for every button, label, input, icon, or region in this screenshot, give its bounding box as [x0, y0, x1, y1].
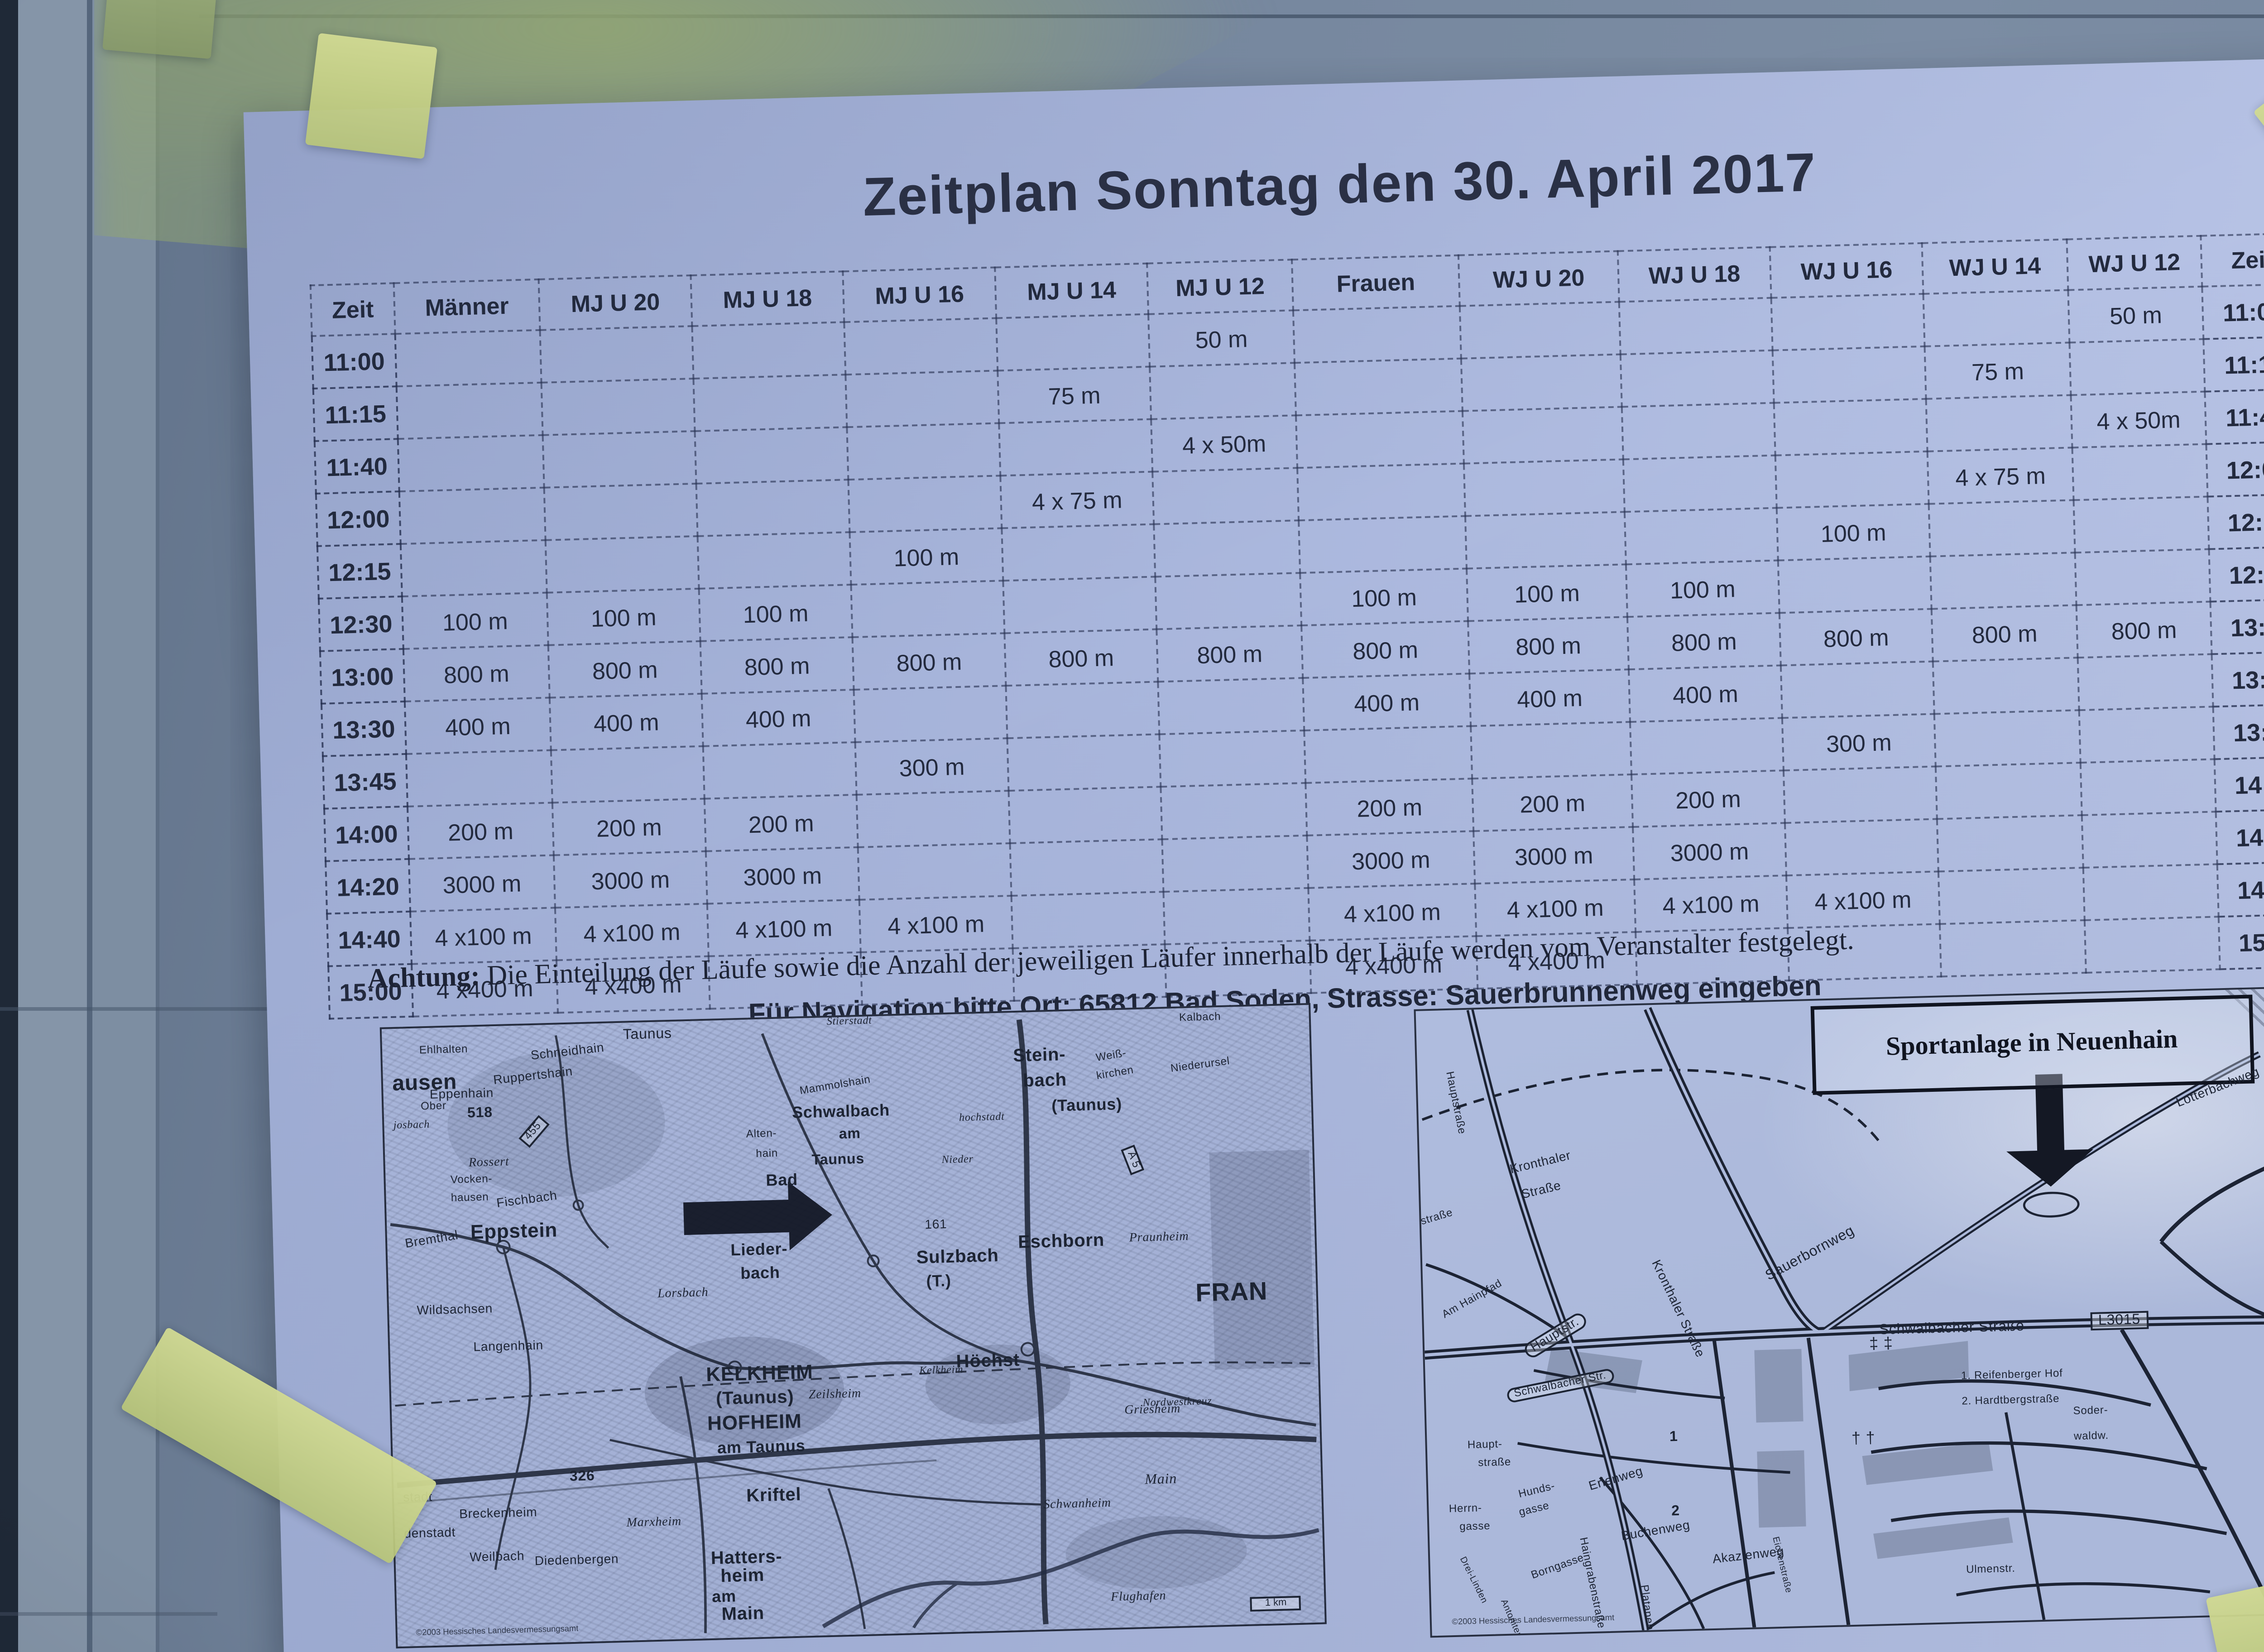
schedule-header-cell: Zeit — [2201, 233, 2264, 287]
schedule-time-cell: 14:20 — [326, 859, 410, 914]
schedule-time-cell: 12:00 — [2206, 442, 2264, 497]
map-label: Soder- — [2073, 1406, 2108, 1417]
map-label: Schwalbach — [792, 1102, 890, 1121]
map-label: hochstadt — [959, 1112, 1005, 1124]
schedule-event-cell — [1937, 815, 2083, 871]
schedule-event-cell: 800 m — [403, 645, 550, 701]
schedule-event-cell: 3000 m — [1307, 831, 1475, 888]
schedule-event-cell: 100 m — [1467, 564, 1627, 621]
schedule-event-cell — [551, 746, 705, 803]
schedule-header-cell: Frauen — [1292, 255, 1460, 311]
schedule-event-cell — [406, 750, 552, 807]
schedule-time-cell: 14:20 — [2216, 809, 2264, 864]
schedule-time-cell: 12:15 — [2207, 494, 2264, 549]
schedule-event-cell — [1923, 290, 2069, 346]
map-label: Praunheim — [1129, 1230, 1189, 1244]
schedule-event-cell — [1158, 678, 1304, 734]
map-label: Ulmenstr. — [1966, 1564, 2015, 1576]
schedule-event-cell — [1623, 456, 1777, 512]
schedule-event-cell: 3000 m — [706, 847, 859, 904]
map-label: am Taunus — [717, 1438, 806, 1457]
schedule-event-cell: 400 m — [1629, 665, 1782, 722]
schedule-event-cell: 50 m — [1148, 310, 1295, 366]
map-label: straße — [1478, 1459, 1511, 1470]
schedule-event-cell: 800 m — [700, 637, 854, 694]
map-label: Wildsachsen — [417, 1304, 493, 1319]
schedule-event-cell — [1630, 718, 1784, 774]
schedule-event-cell — [1471, 722, 1631, 778]
map-label: Stierstadt — [826, 1016, 872, 1028]
schedule-event-cell: 800 m — [1156, 625, 1303, 682]
schedule-event-cell — [1771, 294, 1925, 351]
map-label: Zeilsheim — [808, 1387, 861, 1401]
schedule-event-cell — [2079, 706, 2215, 763]
detail-map: Sportanlage in Neuenhain ©2003 Hessische… — [1414, 983, 2264, 1638]
schedule-event-cell: 100 m — [1300, 568, 1468, 625]
schedule-event-cell — [692, 322, 845, 379]
schedule-event-cell: 100 m — [699, 585, 853, 641]
schedule-event-cell: 200 m — [1305, 778, 1473, 836]
map-label: KELKHEIM — [706, 1364, 813, 1387]
schedule-event-cell — [1150, 363, 1296, 419]
schedule-event-cell — [1933, 658, 2079, 714]
schedule-event-cell — [844, 318, 998, 375]
schedule-event-cell: 4 x100 m — [707, 900, 861, 956]
schedule-event-cell — [848, 475, 1002, 532]
schedule-event-cell — [1625, 508, 1778, 565]
map-label: † † — [1851, 1431, 1875, 1447]
schedule-event-cell: 4 x100 m — [859, 896, 1013, 952]
schedule-event-cell: 4 x100 m — [410, 908, 556, 964]
schedule-event-cell — [546, 536, 699, 593]
map-label: hain — [756, 1148, 778, 1160]
schedule-event-cell — [1012, 892, 1165, 948]
page-title: Zeitplan Sonntag den 30. April 2017 — [245, 127, 2264, 246]
schedule-event-cell — [1161, 783, 1307, 839]
schedule-event-cell — [1006, 682, 1159, 738]
map-label: Bad — [766, 1173, 798, 1190]
schedule-event-cell — [1297, 464, 1465, 521]
schedule-event-cell — [857, 791, 1010, 847]
map-label: Griesheim — [1124, 1404, 1181, 1418]
door-frame-edge — [0, 0, 18, 1652]
schedule-event-cell — [540, 326, 694, 383]
map-label: Stein- — [1013, 1048, 1066, 1068]
schedule-event-cell: 400 m — [405, 698, 551, 754]
map-label: Main — [721, 1606, 764, 1625]
schedule-event-cell — [1010, 839, 1164, 896]
map-label: Taunus — [623, 1028, 672, 1043]
schedule-time-cell: 13:45 — [323, 754, 408, 809]
map-label: Hatters- — [711, 1550, 783, 1570]
schedule-event-cell — [1162, 836, 1308, 892]
schedule-time-cell: 14:00 — [324, 807, 409, 861]
schedule-header-cell: MJ U 16 — [843, 268, 996, 322]
schedule-header-cell: WJ U 14 — [1922, 240, 2068, 294]
schedule-event-cell: 100 m — [849, 528, 1003, 585]
map-label: am — [712, 1588, 737, 1605]
schedule-event-cell: 4 x 50m — [2071, 392, 2206, 448]
schedule-event-cell: 100 m — [547, 589, 700, 645]
map-label: Eppenhain — [430, 1088, 494, 1103]
schedule-time-cell: 13:45 — [2213, 704, 2264, 759]
schedule-event-cell: 200 m — [552, 799, 706, 855]
schedule-event-cell — [2083, 864, 2219, 920]
map-label: Kriftel — [746, 1488, 801, 1507]
schedule-event-cell — [1781, 662, 1934, 718]
schedule-time-cell: 13:00 — [320, 649, 405, 704]
schedule-event-cell: 800 m — [1932, 605, 2078, 661]
schedule-event-cell: 200 m — [1472, 774, 1633, 831]
map-label: Marxheim — [626, 1516, 681, 1530]
schedule-event-cell — [851, 581, 1004, 637]
schedule-event-cell — [2075, 549, 2211, 605]
schedule-sheet: Zeitplan Sonntag den 30. April 2017 Zeit… — [244, 55, 2264, 1652]
schedule-event-cell: 400 m — [1303, 673, 1471, 730]
schedule-event-cell — [845, 370, 999, 427]
map-label: Lieder- — [730, 1241, 788, 1258]
schedule-time-cell: 11:15 — [2203, 336, 2264, 392]
schedule-event-cell — [1009, 787, 1162, 843]
schedule-event-cell: 800 m — [2077, 602, 2212, 658]
schedule-event-cell — [1304, 726, 1472, 783]
schedule-header-cell: WJ U 12 — [2067, 236, 2202, 290]
map-label: am — [839, 1128, 861, 1143]
schedule-event-cell — [703, 742, 857, 799]
schedule-time-cell: 13:30 — [2212, 652, 2264, 707]
schedule-header-cell: Männer — [394, 279, 540, 334]
achtung-label: Achtung: — [367, 961, 480, 995]
map-label: Vocken- — [451, 1175, 493, 1186]
schedule-event-cell — [2069, 339, 2205, 395]
schedule-event-cell — [1003, 577, 1156, 634]
schedule-time-cell: 12:00 — [316, 491, 401, 546]
schedule-event-cell — [398, 435, 544, 491]
schedule-event-cell — [1465, 512, 1626, 568]
map-label: heim — [720, 1569, 765, 1589]
schedule-event-cell: 100 m — [402, 593, 548, 649]
map-label: 326 — [569, 1469, 595, 1484]
door-frame-band — [18, 0, 87, 1652]
schedule-event-cell: 400 m — [550, 694, 703, 750]
schedule-event-cell — [1461, 354, 1622, 411]
schedule-event-cell — [1785, 819, 1938, 875]
map-label: (Taunus) — [1051, 1096, 1122, 1114]
schedule-header-cell: WJ U 20 — [1458, 251, 1619, 306]
schedule-event-cell — [999, 419, 1152, 476]
map-label: Main — [1145, 1472, 1177, 1487]
map-label: ‡ ‡ — [1869, 1336, 1893, 1353]
map-label: HOFHEIM — [707, 1414, 802, 1436]
map-label: 1 — [1669, 1429, 1678, 1444]
schedule-event-cell: 3000 m — [1633, 823, 1786, 879]
map-label: (Taunus) — [716, 1389, 794, 1409]
schedule-event-cell — [996, 314, 1150, 371]
schedule-event-cell — [543, 431, 696, 488]
left-map-scale: 1 km — [1250, 1596, 1301, 1612]
schedule-time-cell: 13:30 — [321, 701, 406, 756]
schedule-event-cell — [1299, 516, 1467, 573]
door-panel-line — [0, 1007, 272, 1011]
map-label: L3015 — [2091, 1311, 2148, 1330]
map-label: Alten- — [746, 1130, 777, 1142]
schedule-event-cell — [1163, 888, 1309, 944]
schedule-event-cell: 800 m — [1780, 609, 1933, 666]
map-label: Weilbach — [470, 1551, 525, 1565]
tape-strip — [102, 0, 216, 59]
schedule-event-cell: 4 x 50m — [1151, 415, 1297, 471]
map-label: Kalbach — [1179, 1013, 1221, 1025]
schedule-event-cell — [542, 379, 695, 435]
schedule-event-cell: 4 x100 m — [1308, 884, 1476, 941]
map-label: Flughafen — [1111, 1590, 1166, 1604]
schedule-event-cell: 3000 m — [554, 851, 707, 908]
schedule-event-cell — [847, 423, 1000, 480]
schedule-event-cell: 75 m — [998, 367, 1151, 423]
schedule-event-cell: 800 m — [1301, 621, 1469, 678]
tape-strip — [305, 33, 437, 159]
schedule-event-cell: 3000 m — [409, 855, 555, 911]
schedule-event-cell — [1938, 868, 2085, 924]
schedule-event-cell — [1621, 351, 1774, 407]
schedule-event-cell — [1784, 767, 1937, 823]
map-label: 2 — [1671, 1504, 1680, 1519]
schedule-header-cell: Zeit — [311, 283, 395, 336]
map-label: Ober — [421, 1102, 446, 1113]
schedule-time-cell: 14:00 — [2215, 757, 2264, 812]
map-label: denstadt — [404, 1527, 456, 1542]
schedule-time-cell: 11:00 — [2202, 284, 2264, 339]
schedule-header-cell: MJ U 12 — [1147, 259, 1293, 314]
map-label: Ehlhalten — [419, 1045, 468, 1057]
schedule-event-cell — [1619, 298, 1773, 355]
door-groove — [87, 0, 92, 1652]
schedule-event-cell — [1774, 399, 1928, 456]
map-label: gasse — [1459, 1522, 1491, 1533]
schedule-event-cell — [1159, 730, 1305, 787]
schedule-time-cell: 13:00 — [2210, 599, 2264, 654]
schedule-event-cell — [1934, 710, 2081, 766]
schedule-event-cell — [1460, 302, 1621, 358]
map-label: Diedenbergen — [535, 1554, 619, 1569]
schedule-event-cell: 3000 m — [1473, 827, 1634, 884]
schedule-event-cell: 200 m — [705, 795, 858, 851]
schedule-event-cell — [1293, 306, 1461, 363]
schedule-time-cell: 11:15 — [313, 386, 398, 441]
schedule-event-cell — [2074, 497, 2209, 553]
map-label: FRAN — [1195, 1278, 1268, 1305]
schedule-event-cell — [693, 375, 847, 431]
schedule-event-cell: 100 m — [1626, 560, 1780, 617]
photo-stage: Zeitplan Sonntag den 30. April 2017 Zeit… — [0, 0, 2264, 1652]
schedule-event-cell — [1929, 500, 2075, 556]
schedule-event-cell — [1154, 520, 1300, 576]
map-label: Breckenheim — [459, 1507, 537, 1522]
schedule-event-cell: 200 m — [1631, 770, 1785, 827]
schedule-header-cell: MJ U 20 — [539, 275, 692, 330]
map-label: Sulzbach — [916, 1248, 999, 1268]
map-label: (T.) — [926, 1274, 951, 1291]
schedule-event-cell — [695, 427, 848, 484]
map-label: Eppstein — [470, 1222, 557, 1244]
schedule-event-cell — [1775, 451, 1929, 508]
schedule-event-cell: 300 m — [1782, 714, 1936, 771]
schedule-header-cell: MJ U 14 — [995, 264, 1148, 318]
map-label: Eschborn — [1018, 1233, 1105, 1253]
schedule-event-cell — [1007, 734, 1161, 791]
schedule-event-cell — [1773, 346, 1926, 403]
schedule-event-cell: 4 x 75 m — [1000, 472, 1154, 528]
schedule-event-cell: 800 m — [1627, 613, 1781, 669]
schedule-event-cell — [401, 540, 547, 596]
map-label: Schwanheim — [1043, 1498, 1111, 1513]
schedule-header-cell: WJ U 18 — [1618, 247, 1771, 302]
schedule-event-cell — [1926, 395, 2072, 451]
schedule-event-cell: 800 m — [853, 633, 1006, 690]
schedule-event-cell — [544, 484, 698, 540]
map-label: Nieder — [941, 1156, 974, 1167]
map-label: hausen — [451, 1193, 489, 1205]
schedule-event-cell: 4 x100 m — [1786, 871, 1940, 928]
map-label: Lorsbach — [657, 1286, 709, 1300]
schedule-event-cell — [1002, 524, 1155, 581]
map-label: waldw. — [2074, 1431, 2109, 1442]
map-label: Rossert — [469, 1156, 509, 1169]
schedule-table: ZeitMännerMJ U 20MJ U 18MJ U 16MJ U 14MJ… — [310, 232, 2264, 1020]
map-label: Langenhain — [473, 1340, 543, 1354]
schedule-event-cell — [1930, 552, 2077, 609]
schedule-event-cell: 400 m — [702, 690, 855, 746]
schedule-time-cell: 12:30 — [2209, 547, 2264, 602]
schedule-header-cell: WJ U 16 — [1770, 243, 1923, 298]
schedule-time-cell: 11:00 — [312, 334, 397, 389]
schedule-event-cell — [854, 686, 1007, 742]
map-label: Kelkheim — [919, 1366, 964, 1378]
overview-map: ©2003 Hessisches Landesvermessungsamt 1 … — [380, 1003, 1327, 1648]
schedule-event-cell — [1152, 468, 1299, 524]
schedule-time-cell: 11:40 — [2205, 389, 2264, 444]
map-label: Höchst — [956, 1352, 1020, 1372]
schedule-event-cell: 800 m — [1468, 617, 1629, 673]
map-label: bach — [1023, 1073, 1067, 1092]
schedule-time-cell: 14:40 — [2217, 861, 2264, 917]
map-label: josbach — [393, 1120, 430, 1132]
schedule-event-cell: 800 m — [548, 641, 702, 698]
schedule-event-cell: 4 x100 m — [555, 904, 709, 960]
schedule-time-cell: 11:40 — [315, 439, 399, 494]
sportanlage-callout: Sportanlage in Neuenhain — [1810, 995, 2254, 1095]
schedule-event-cell: 50 m — [2068, 287, 2203, 343]
schedule-time-cell: 12:15 — [317, 544, 402, 599]
schedule-header-cell: MJ U 18 — [691, 271, 844, 326]
schedule-event-cell: 800 m — [1004, 629, 1158, 686]
schedule-event-cell — [1936, 763, 2082, 819]
map-label: Taunus — [811, 1153, 864, 1168]
schedule-event-cell — [1464, 459, 1625, 516]
schedule-time-cell: 14:40 — [327, 912, 412, 966]
schedule-event-cell — [399, 488, 546, 544]
schedule-event-cell — [1778, 557, 1932, 613]
schedule-time-cell: 12:30 — [319, 596, 403, 651]
schedule-event-cell — [2082, 812, 2217, 868]
schedule-event-cell — [2081, 759, 2216, 815]
door-panel-line — [0, 1612, 217, 1616]
schedule-event-cell — [397, 383, 543, 439]
map-label: bach — [740, 1266, 780, 1283]
schedule-event-cell: 75 m — [1925, 342, 2071, 399]
schedule-event-cell: 300 m — [855, 738, 1009, 795]
map-label: 161 — [925, 1218, 947, 1231]
schedule-event-cell: 400 m — [1469, 669, 1630, 726]
map-label: 518 — [467, 1107, 493, 1122]
schedule-event-cell — [1155, 573, 1301, 629]
schedule-event-cell — [1296, 411, 1464, 468]
schedule-event-cell — [2078, 654, 2213, 710]
schedule-event-cell — [395, 330, 542, 386]
schedule-event-cell — [1463, 407, 1623, 463]
schedule-event-cell — [698, 532, 851, 589]
schedule-event-cell: 100 m — [1777, 504, 1930, 561]
map-label: Haupt- — [1468, 1440, 1502, 1452]
map-label: Herrn- — [1449, 1503, 1482, 1515]
schedule-event-cell: 4 x 75 m — [1928, 447, 2074, 504]
schedule-event-cell — [1295, 359, 1463, 416]
schedule-event-cell: 4 x100 m — [1634, 875, 1788, 932]
callout-arrow — [2005, 1073, 2094, 1188]
schedule-event-cell: 200 m — [408, 803, 554, 859]
schedule-event-cell — [2072, 444, 2207, 500]
schedule-event-cell: 4 x100 m — [1475, 879, 1636, 936]
schedule-event-cell — [696, 480, 850, 536]
schedule-event-cell — [1622, 403, 1775, 460]
photo-viewport: Zeitplan Sonntag den 30. April 2017 Zeit… — [0, 0, 2264, 1652]
schedule-event-cell — [858, 843, 1012, 900]
